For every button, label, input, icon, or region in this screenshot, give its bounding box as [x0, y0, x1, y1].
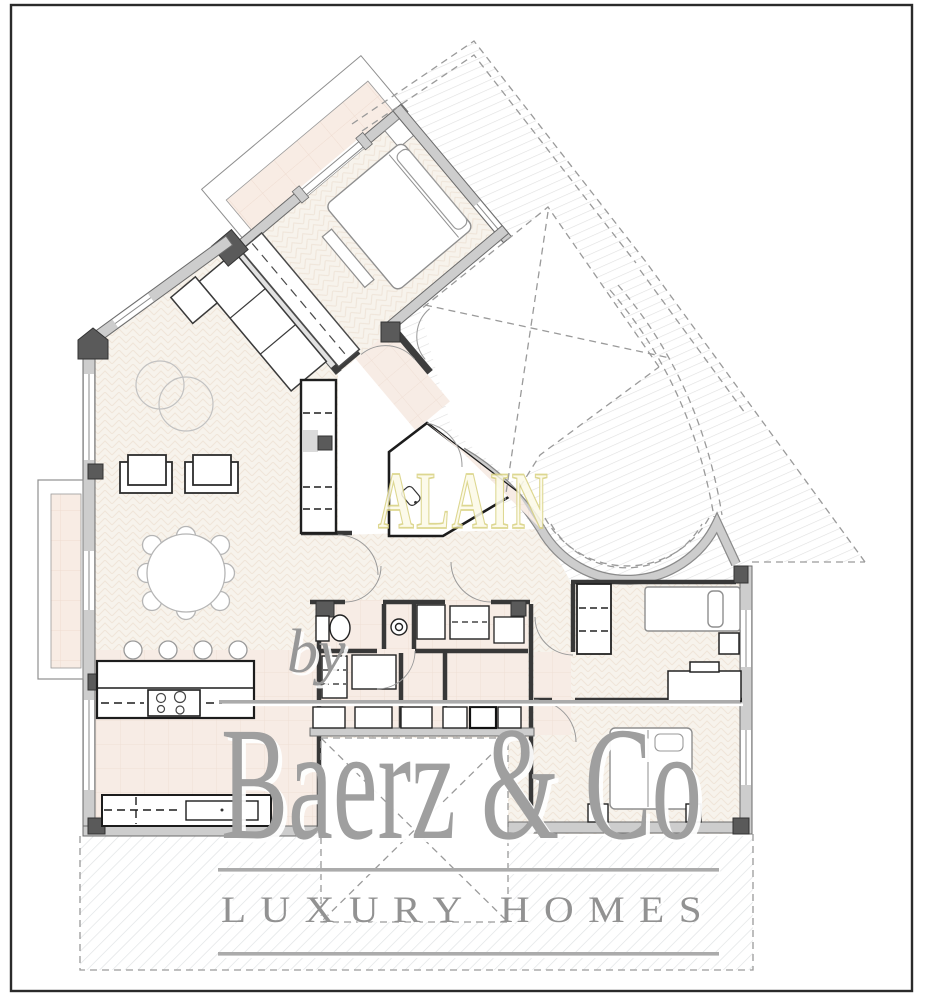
svg-text:by: by	[287, 618, 346, 686]
svg-text:LUXURY HOMES: LUXURY HOMES	[221, 890, 716, 931]
svg-text:Baerz & Co: Baerz & Co	[221, 695, 702, 874]
svg-text:ALAIN: ALAIN	[378, 455, 550, 546]
